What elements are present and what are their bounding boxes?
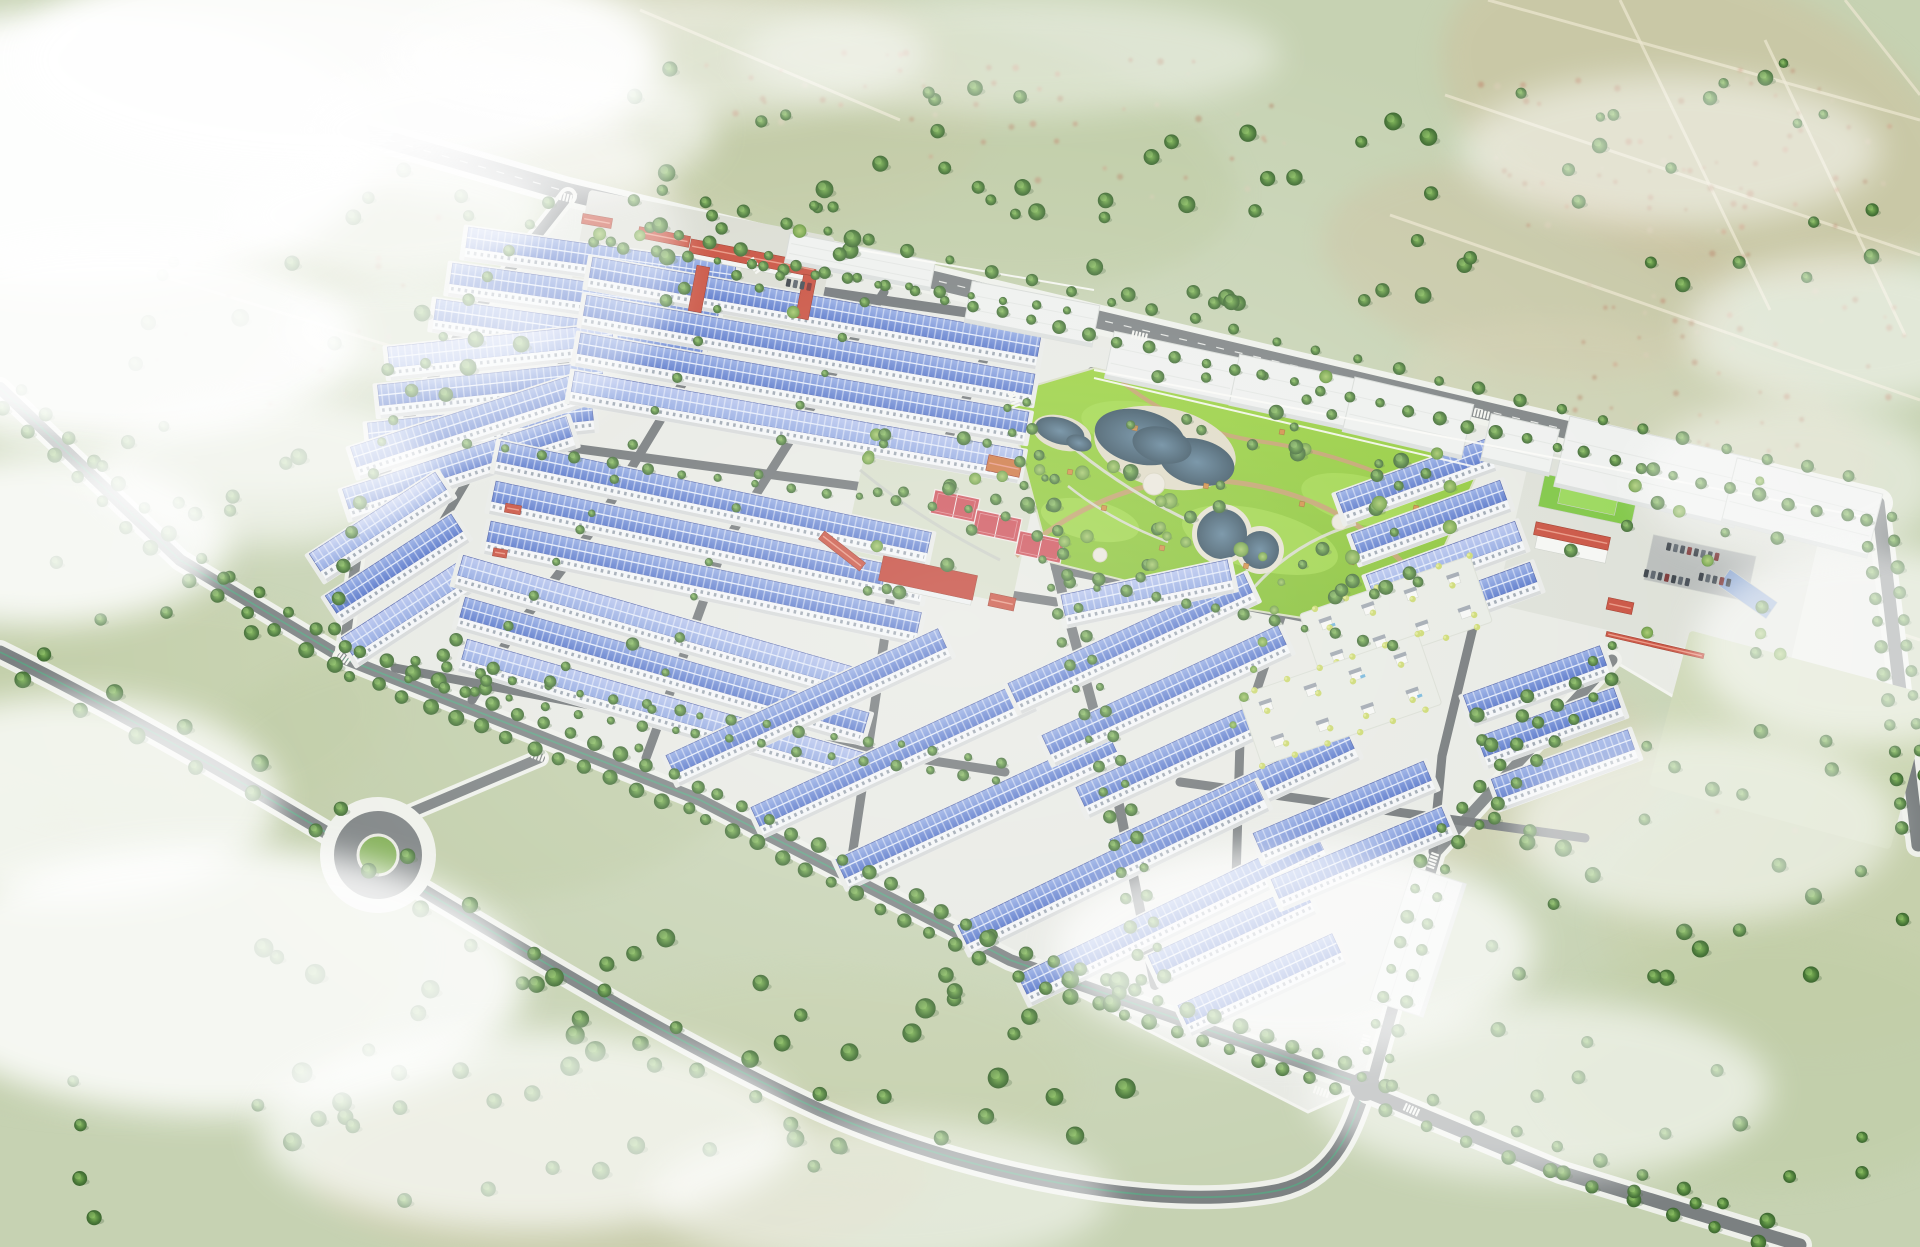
- cloud: [95, 395, 435, 545]
- cloud: [1460, 75, 1880, 225]
- cloud: [740, 0, 1280, 115]
- cloud: [1310, 1000, 1770, 1180]
- cloud: [1515, 730, 1895, 920]
- cloud: [280, 275, 560, 385]
- scene-canvas: [0, 0, 1920, 1247]
- aerial-masterplan-render: [0, 0, 1920, 1247]
- cloud: [230, 150, 550, 280]
